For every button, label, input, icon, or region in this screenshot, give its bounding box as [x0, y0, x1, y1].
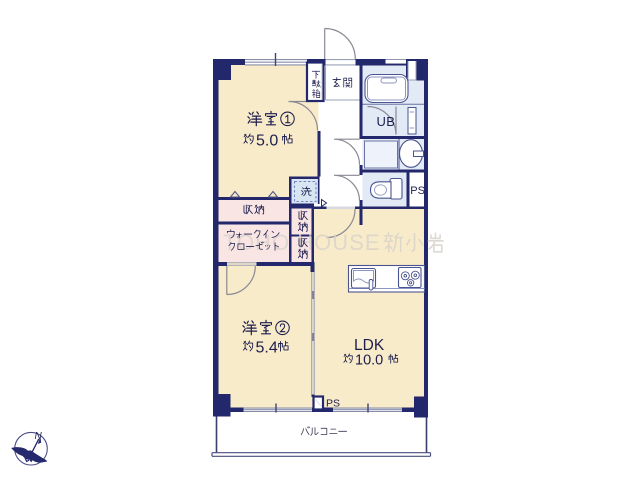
- svg-text:UB: UB: [377, 114, 396, 129]
- svg-text:N: N: [35, 431, 43, 442]
- svg-text:5.4: 5.4: [256, 340, 278, 357]
- svg-text:PS: PS: [326, 398, 340, 410]
- svg-text:10.0: 10.0: [355, 353, 383, 369]
- svg-text:LDK: LDK: [354, 337, 385, 354]
- svg-text:PS: PS: [410, 185, 425, 197]
- svg-text:5.0: 5.0: [256, 133, 278, 150]
